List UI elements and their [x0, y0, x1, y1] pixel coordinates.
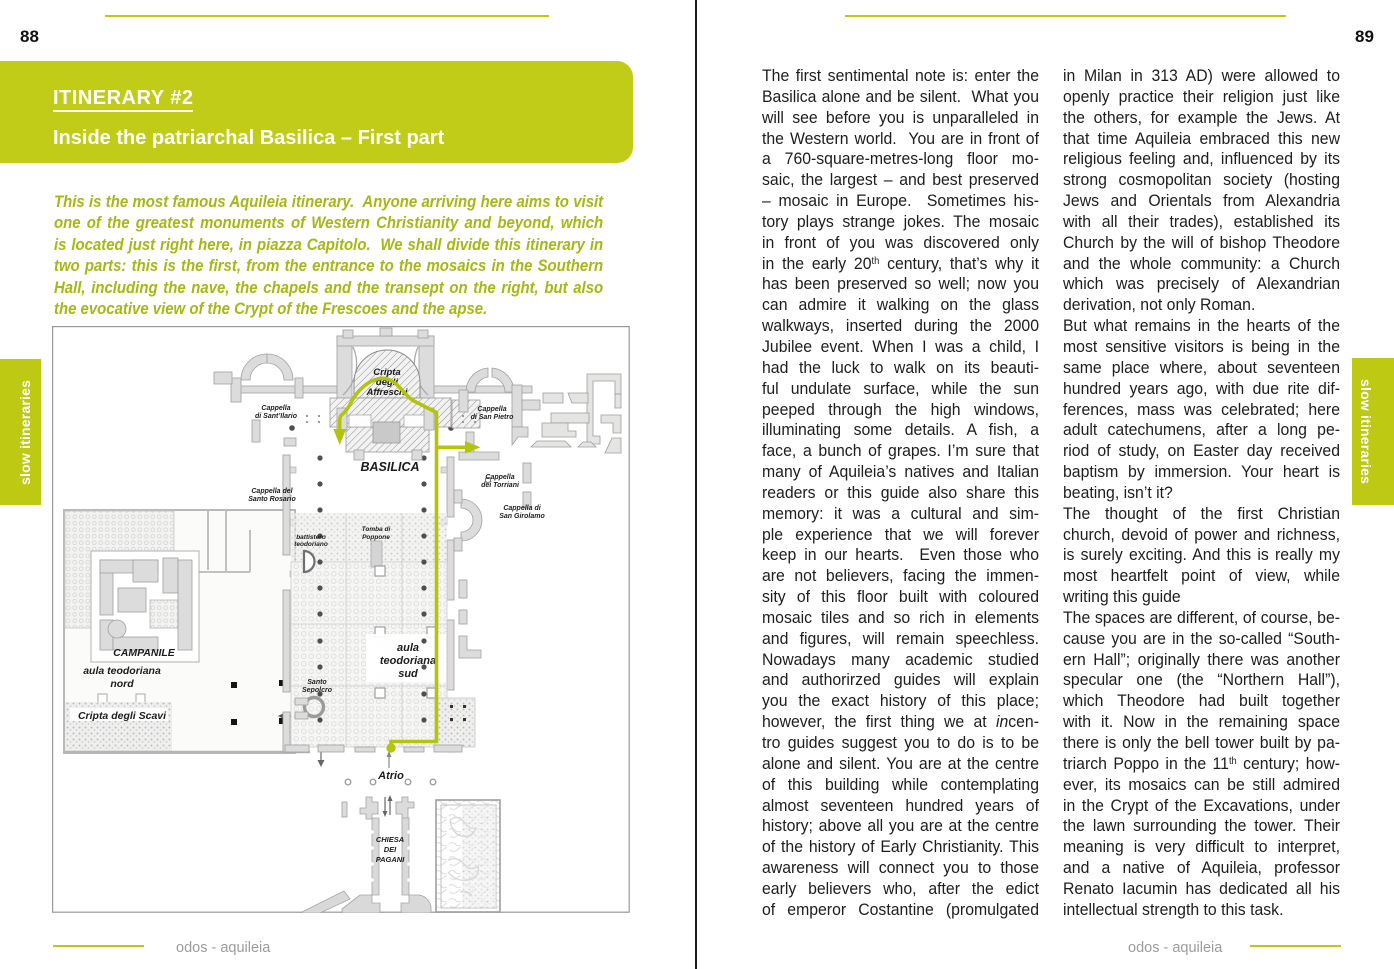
- svg-text:BASILICA: BASILICA: [360, 460, 419, 474]
- svg-text:Cappella: Cappella: [261, 405, 290, 412]
- svg-text:aula teodoriana: aula teodoriana: [83, 665, 161, 677]
- svg-text:Cappella del: Cappella del: [251, 488, 293, 495]
- svg-text:Santo Rosario: Santo Rosario: [248, 496, 296, 503]
- svg-text:Cripta degli Scavi: Cripta degli Scavi: [78, 710, 167, 722]
- svg-text:Santo: Santo: [307, 679, 327, 686]
- svg-text:nord: nord: [110, 678, 134, 690]
- svg-text:sud: sud: [398, 668, 418, 680]
- svg-text:Cappella: Cappella: [485, 474, 514, 481]
- svg-text:CHIESA: CHIESA: [376, 835, 404, 844]
- svg-text:aula: aula: [397, 642, 419, 654]
- svg-text:teodoriana: teodoriana: [380, 655, 436, 667]
- svg-text:Cappella di: Cappella di: [503, 505, 541, 512]
- svg-text:di San Pietro: di San Pietro: [471, 414, 515, 421]
- svg-text:Tomba di: Tomba di: [362, 526, 391, 533]
- svg-text:Atrio: Atrio: [377, 770, 404, 782]
- svg-text:PAGANI: PAGANI: [376, 855, 406, 864]
- svg-text:CAMPANILE: CAMPANILE: [113, 647, 176, 659]
- svg-text:teodoriano: teodoriano: [294, 541, 328, 548]
- svg-text:Sepolcro: Sepolcro: [302, 687, 333, 694]
- svg-text:DEI: DEI: [384, 845, 397, 854]
- svg-text:di Sant’Ilario: di Sant’Ilario: [255, 413, 298, 420]
- svg-text:dei Torriani: dei Torriani: [481, 482, 520, 489]
- svg-text:battistero: battistero: [296, 534, 326, 541]
- svg-text:Poppone: Poppone: [362, 534, 390, 541]
- svg-text:Cappella: Cappella: [477, 406, 506, 413]
- svg-text:San Girolamo: San Girolamo: [499, 513, 545, 520]
